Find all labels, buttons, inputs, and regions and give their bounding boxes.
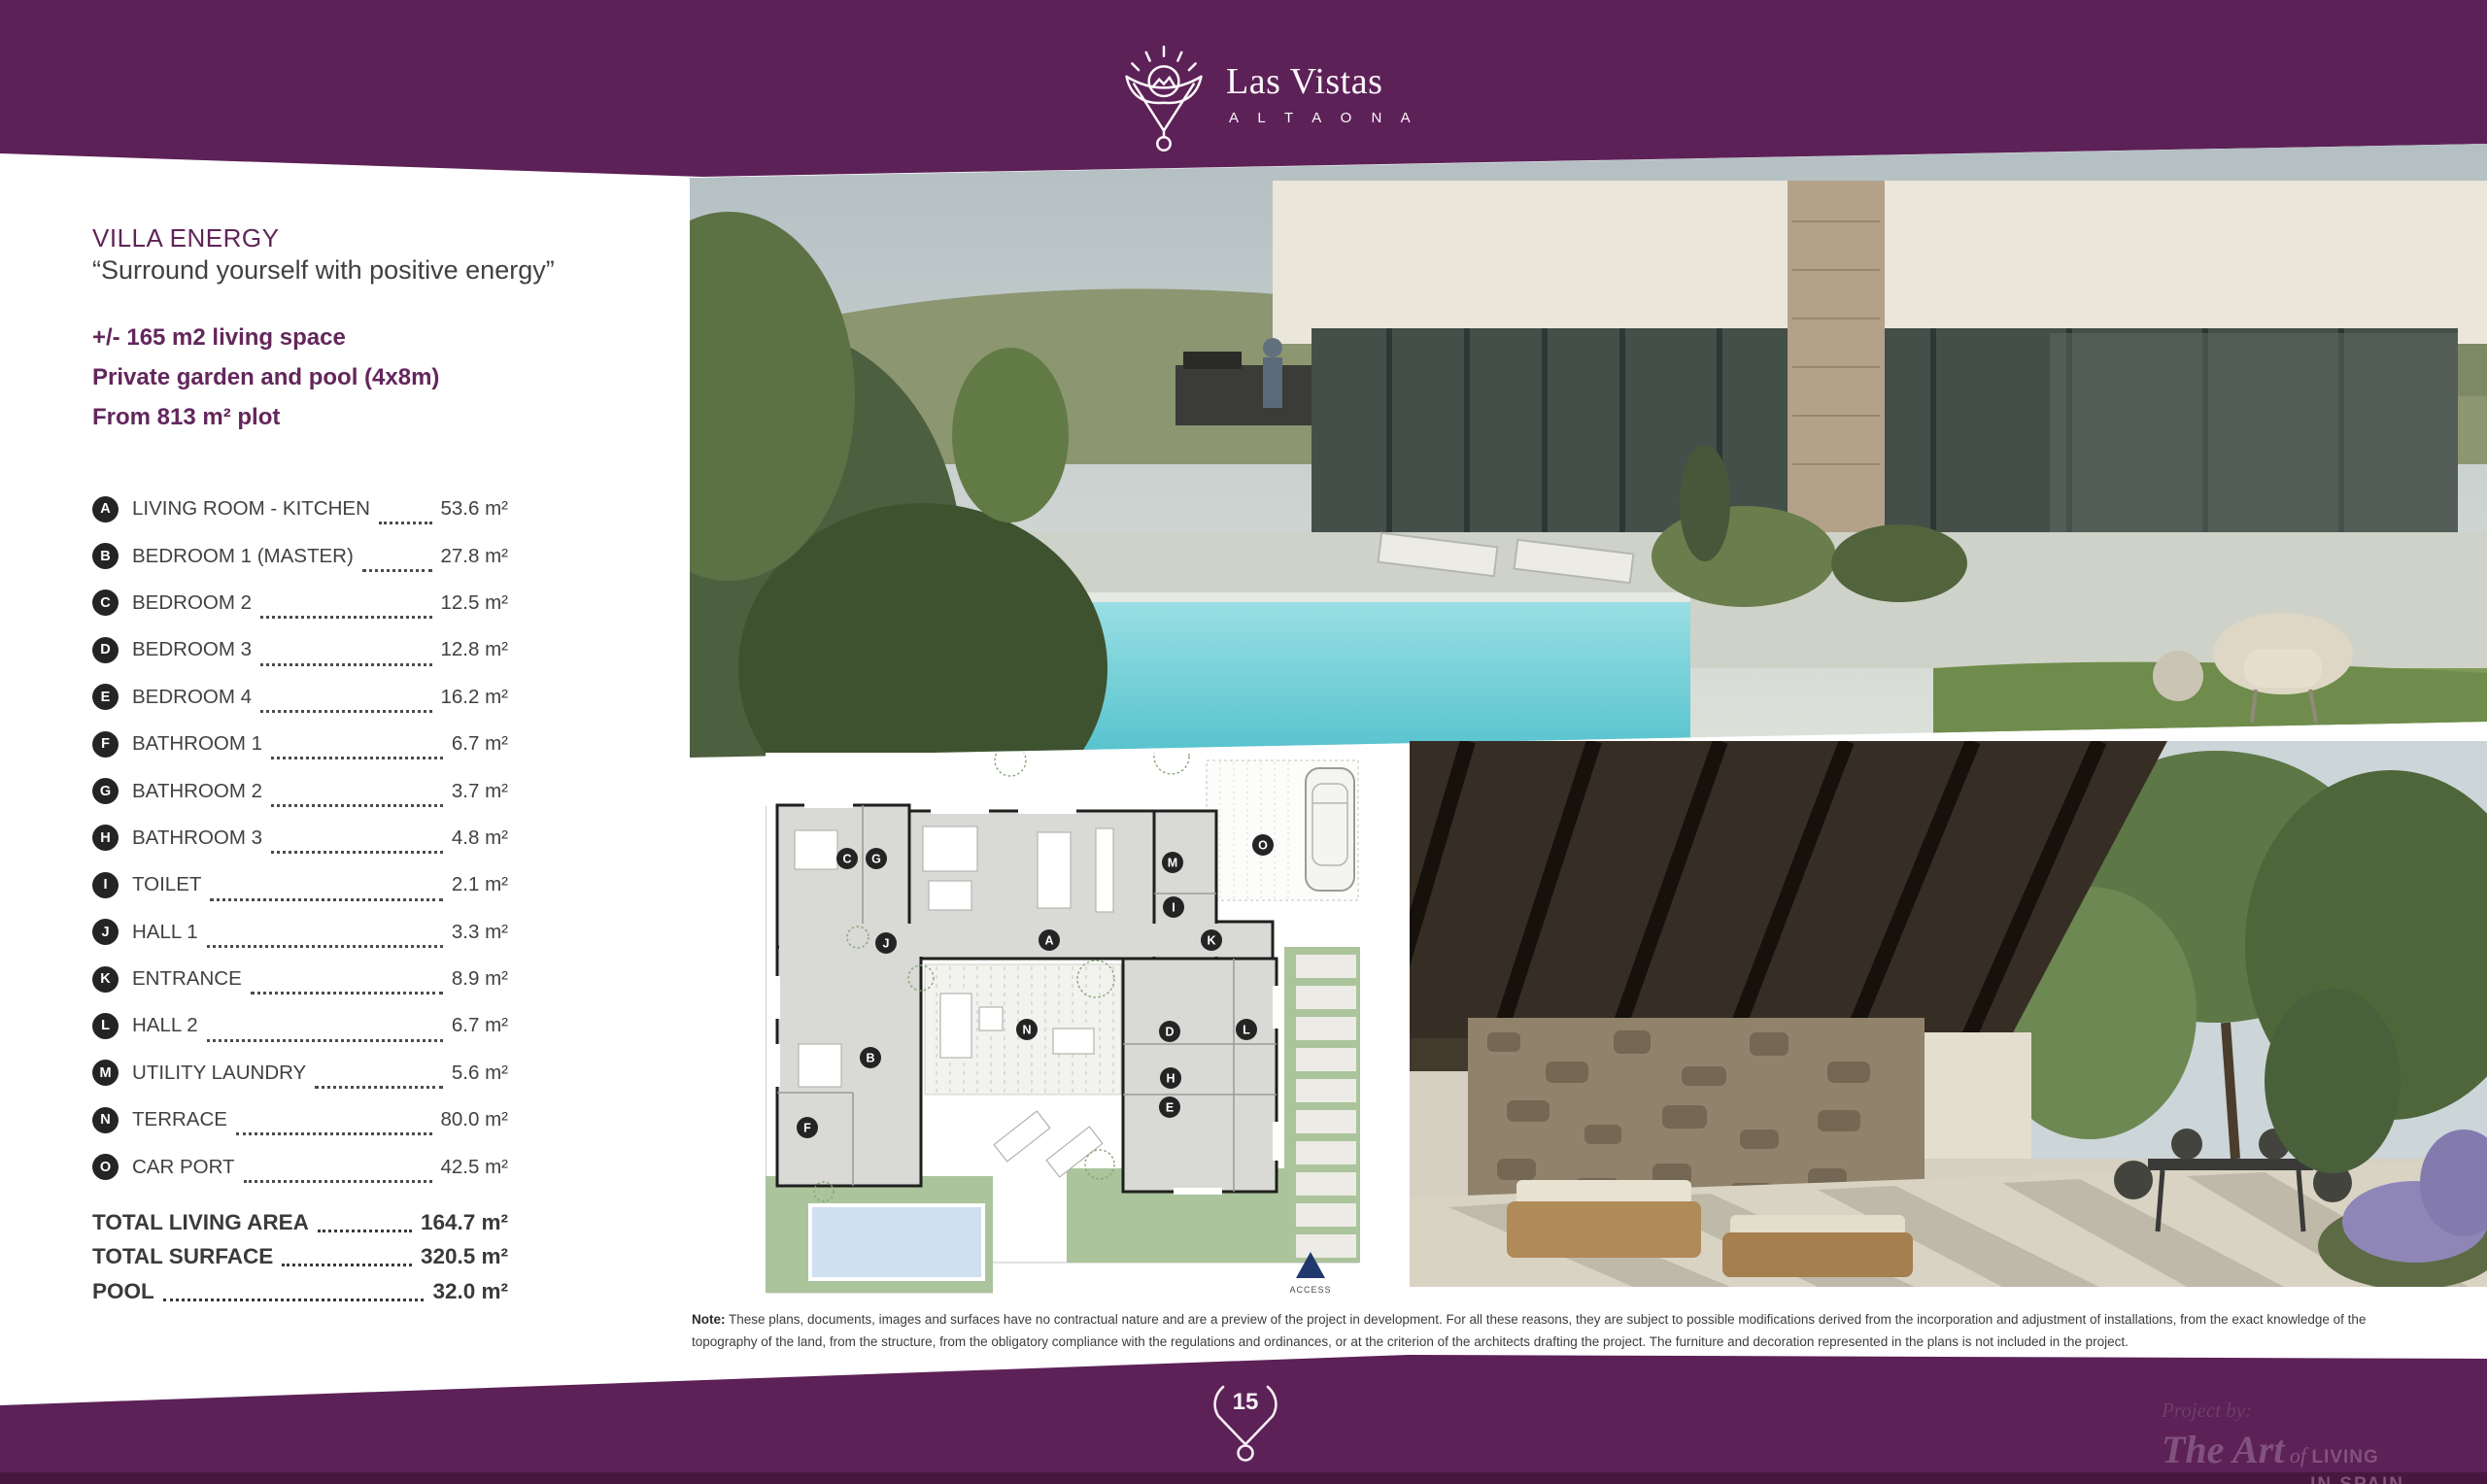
room-row: DBEDROOM 312.8 m² — [92, 626, 508, 673]
svg-text:K: K — [1207, 934, 1215, 948]
room-key-badge: K — [92, 966, 119, 993]
dot-leader — [315, 1086, 443, 1089]
project-by-label: Project by: — [2162, 1399, 2404, 1423]
dot-leader — [379, 522, 432, 524]
room-key-badge: B — [92, 543, 119, 569]
svg-text:O: O — [1258, 839, 1268, 853]
room-key-badge: I — [92, 872, 119, 898]
svg-text:A: A — [1044, 934, 1053, 948]
note-body: These plans, documents, images and surfa… — [692, 1312, 2366, 1349]
dot-leader — [271, 757, 443, 759]
room-row: GBATHROOM 23.7 m² — [92, 767, 508, 814]
dot-leader — [260, 616, 431, 619]
room-key-badge: F — [92, 731, 119, 758]
plan-carport — [1207, 760, 1358, 900]
dot-leader — [207, 1039, 443, 1042]
room-key-badge: G — [92, 778, 119, 804]
svg-text:H: H — [1166, 1072, 1175, 1086]
dot-leader — [260, 663, 431, 666]
total-surface-row: TOTAL SURFACE320.5 m² — [92, 1240, 508, 1275]
dot-leader — [260, 710, 431, 713]
svg-text:D: D — [1165, 1026, 1174, 1039]
dot-leader — [271, 851, 443, 854]
dot-leader — [251, 992, 443, 995]
totals-block: TOTAL LIVING AREA164.7 m² TOTAL SURFACE3… — [92, 1205, 508, 1309]
room-row: OCAR PORT42.5 m² — [92, 1143, 508, 1190]
dot-leader — [271, 804, 443, 807]
villa-highlights: +/- 165 m2 living space Private garden a… — [92, 318, 439, 437]
brochure-page: Las Vistas A L T A O N A VILLA ENERGY “S… — [0, 0, 2487, 1484]
room-key-badge: M — [92, 1060, 119, 1086]
dot-leader — [210, 898, 443, 901]
pool-total-row: POOL32.0 m² — [92, 1274, 508, 1309]
room-key-badge: N — [92, 1107, 119, 1133]
room-row: CBEDROOM 212.5 m² — [92, 580, 508, 626]
room-row: NTERRACE80.0 m² — [92, 1096, 508, 1143]
room-key-badge: H — [92, 825, 119, 851]
svg-text:E: E — [1166, 1101, 1174, 1115]
room-key-badge: E — [92, 684, 119, 710]
villa-tagline: “Surround yourself with positive energy” — [92, 255, 555, 286]
terrace-photo — [1410, 741, 2487, 1287]
room-row: BBEDROOM 1 (MASTER)27.8 m² — [92, 532, 508, 579]
footer-edge-strip — [0, 1472, 2487, 1484]
room-row: MUTILITY LAUNDRY5.6 m² — [92, 1050, 508, 1096]
project-by-block: Project by: The Art of LIVING IN SPAIN — [2162, 1399, 2404, 1484]
brand-subname: A L T A O N A — [1229, 110, 1418, 126]
room-row: FBATHROOM 16.7 m² — [92, 721, 508, 767]
highlight-garden-pool: Private garden and pool (4x8m) — [92, 357, 439, 397]
room-row: JHALL 13.3 m² — [92, 909, 508, 956]
svg-text:M: M — [1168, 857, 1177, 870]
room-key-badge: A — [92, 496, 119, 523]
dot-leader — [318, 1230, 412, 1232]
dot-leader — [163, 1298, 425, 1301]
room-row: ITOILET2.1 m² — [92, 861, 508, 908]
highlight-living-space: +/- 165 m2 living space — [92, 318, 439, 357]
page-number-marker: 15 — [1197, 1379, 1294, 1472]
plan-bedroom-wing — [1123, 959, 1277, 1192]
svg-text:G: G — [871, 853, 881, 866]
las-vistas-logo: Las Vistas A L T A O N A — [1117, 41, 1418, 158]
plan-pool — [810, 1205, 983, 1279]
highlight-plot: From 813 m² plot — [92, 397, 439, 437]
car-icon — [1306, 768, 1354, 891]
room-row: KENTRANCE8.9 m² — [92, 956, 508, 1002]
plan-hall-strip — [779, 924, 1271, 957]
svg-text:C: C — [842, 853, 851, 866]
room-list: ALIVING ROOM - KITCHEN53.6 m² BBEDROOM 1… — [92, 486, 508, 1191]
svg-text:B: B — [866, 1052, 874, 1065]
dot-leader — [362, 569, 432, 572]
legal-note: Note: These plans, documents, images and… — [692, 1308, 2403, 1353]
svg-text:F: F — [803, 1122, 811, 1135]
las-vistas-logo-icon — [1117, 41, 1210, 158]
villa-exterior-photo — [690, 144, 2487, 758]
room-key-badge: O — [92, 1154, 119, 1180]
room-key-badge: J — [92, 919, 119, 945]
floor-plan: A B C D E F G H I J K L M N O ACCESS — [766, 753, 1360, 1301]
art-of-living-logo: The Art of LIVING — [2162, 1427, 2404, 1472]
note-prefix: Note: — [692, 1312, 726, 1327]
page-number: 15 — [1233, 1389, 1259, 1415]
room-row: HBATHROOM 34.8 m² — [92, 815, 508, 861]
total-living-area-row: TOTAL LIVING AREA164.7 m² — [92, 1205, 508, 1240]
dot-leader — [244, 1180, 432, 1183]
dot-leader — [236, 1132, 432, 1135]
room-key-badge: C — [92, 590, 119, 616]
svg-text:I: I — [1172, 901, 1175, 915]
in-spain-label: IN SPAIN — [2162, 1474, 2404, 1484]
svg-text:J: J — [883, 937, 890, 951]
room-row: EBEDROOM 416.2 m² — [92, 674, 508, 721]
dot-leader — [282, 1264, 412, 1266]
svg-text:L: L — [1243, 1024, 1250, 1037]
room-row: LHALL 26.7 m² — [92, 1002, 508, 1049]
access-label: ACCESS — [1289, 1285, 1331, 1295]
room-key-badge: L — [92, 1013, 119, 1039]
room-key-badge: D — [92, 637, 119, 663]
room-row: ALIVING ROOM - KITCHEN53.6 m² — [92, 486, 508, 532]
brand-name: Las Vistas — [1226, 60, 1418, 103]
svg-text:N: N — [1022, 1024, 1031, 1037]
villa-title: VILLA ENERGY — [92, 223, 279, 253]
dot-leader — [207, 945, 443, 948]
